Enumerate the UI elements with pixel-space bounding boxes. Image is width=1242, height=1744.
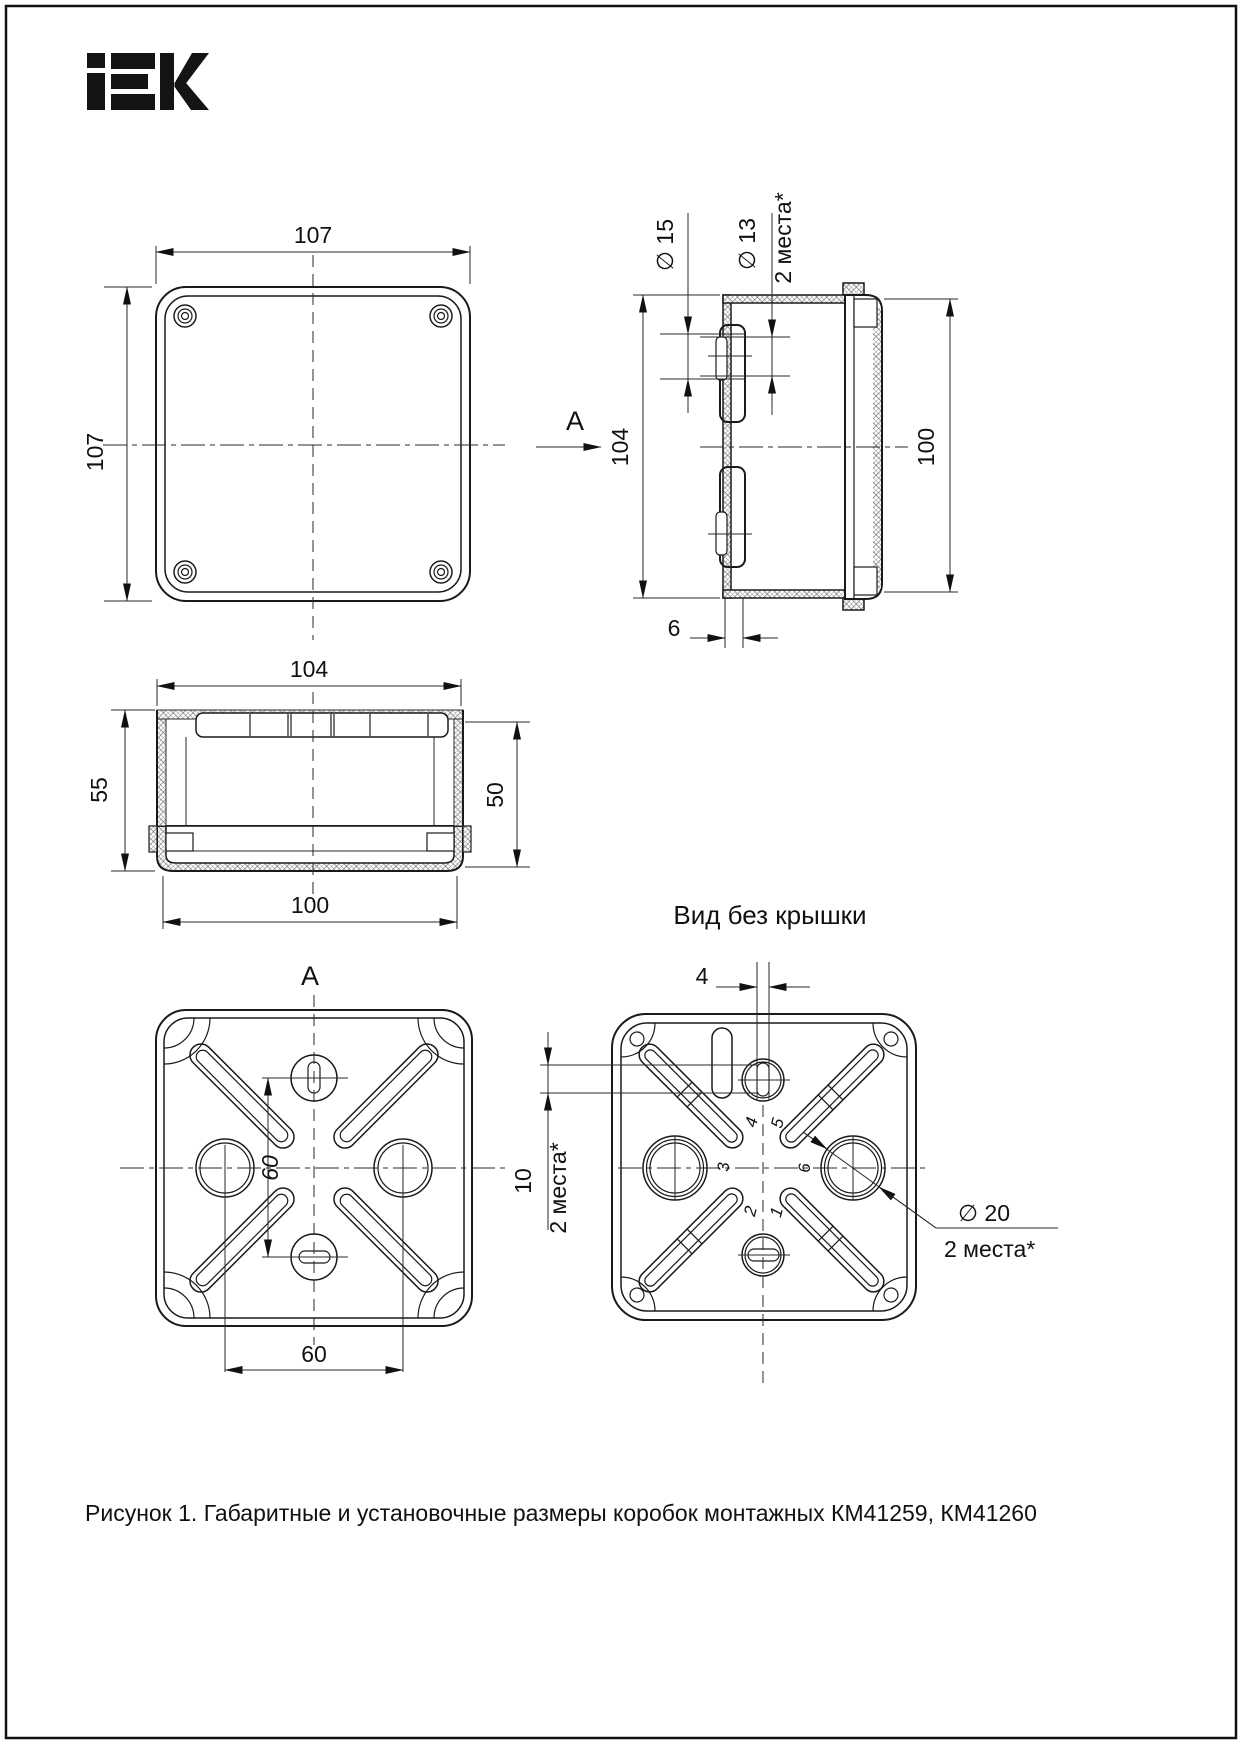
dim-open-10-label: 10 (510, 1168, 536, 1194)
dim-d13-places-label: 2 места* (770, 192, 796, 283)
technical-drawing: 107 107 (0, 0, 1242, 1744)
mold-number-3: 3 (714, 1162, 733, 1172)
top-view: 107 107 (82, 222, 505, 640)
dim-d15-label: ∅ 15 (652, 219, 678, 271)
knockout-slot (776, 1040, 888, 1152)
bottom-view-a: 60 60 (120, 995, 508, 1372)
dim-side-100-label: 100 (913, 428, 939, 466)
dim-viewa-60h-label: 60 (301, 1341, 327, 1367)
dim-open-10-places-label: 2 места* (545, 1142, 571, 1233)
dim-open-4-label: 4 (696, 963, 709, 989)
mold-number-6: 6 (795, 1163, 814, 1173)
front-left-step (166, 833, 193, 851)
corner-screw (430, 561, 452, 583)
knockout-slot (329, 1039, 442, 1152)
cover-latch-bottom (854, 567, 877, 595)
dim-viewa-60v-label: 60 (257, 1155, 283, 1181)
view-a-title: A (301, 961, 319, 991)
dim-top-width-label: 107 (294, 222, 332, 248)
dim-side-6-label: 6 (668, 615, 681, 641)
mold-number-5: 5 (767, 1116, 788, 1131)
iek-logo (87, 53, 209, 110)
side-top-tab (843, 283, 864, 295)
view-direction-label: A (566, 406, 584, 436)
dim-front-100-label: 100 (291, 892, 329, 918)
knockout-slot (185, 1183, 298, 1296)
open-view-title: Вид без крышки (673, 900, 866, 930)
side-view-section: ∅ 15 ∅ 13 2 места* 104 100 6 A (536, 192, 958, 648)
mold-number-4: 4 (741, 1115, 762, 1129)
drawing-page: 107 107 (0, 0, 1242, 1744)
front-bottom-inner (166, 826, 454, 863)
dim-front-55-label: 55 (86, 777, 112, 803)
mold-number-2: 2 (740, 1204, 761, 1220)
dim-d20-label: ∅ 20 (958, 1200, 1010, 1226)
corner-screw (430, 305, 452, 327)
front-right-wall (454, 719, 463, 826)
side-bottom-wall (723, 590, 845, 598)
dim-d20-places-label: 2 места* (944, 1236, 1035, 1262)
front-left-foot (149, 826, 157, 852)
front-left-wall (157, 719, 166, 826)
open-view-outline (612, 1014, 916, 1320)
side-top-wall (723, 295, 845, 303)
corner-screw-tab (621, 1023, 907, 1311)
knockout-slot (635, 1040, 747, 1152)
open-view-no-cover: Вид без крышки (510, 900, 1058, 1388)
front-cover-bar (196, 713, 448, 737)
dim-front-50-label: 50 (482, 782, 508, 808)
open-view-inner (621, 1023, 907, 1311)
dim-top-height-label: 107 (82, 433, 108, 471)
knockout-slot (329, 1183, 442, 1296)
knockout-slot (635, 1184, 747, 1296)
knockout-slot (185, 1039, 298, 1152)
front-right-foot (463, 826, 471, 852)
knockout-slot (776, 1184, 888, 1296)
dim-front-104-label: 104 (290, 656, 329, 682)
figure-caption: Рисунок 1. Габаритные и установочные раз… (85, 1500, 1037, 1526)
corner-screw (174, 305, 196, 327)
cover-latch-top (854, 299, 877, 327)
vertical-slot (712, 1028, 732, 1098)
dim-side-104-label: 104 (607, 428, 633, 467)
corner-screw (174, 561, 196, 583)
front-view-section: 104 55 50 100 A (86, 656, 530, 991)
dim-d13-label: ∅ 13 (734, 218, 760, 270)
front-right-step (427, 833, 454, 851)
